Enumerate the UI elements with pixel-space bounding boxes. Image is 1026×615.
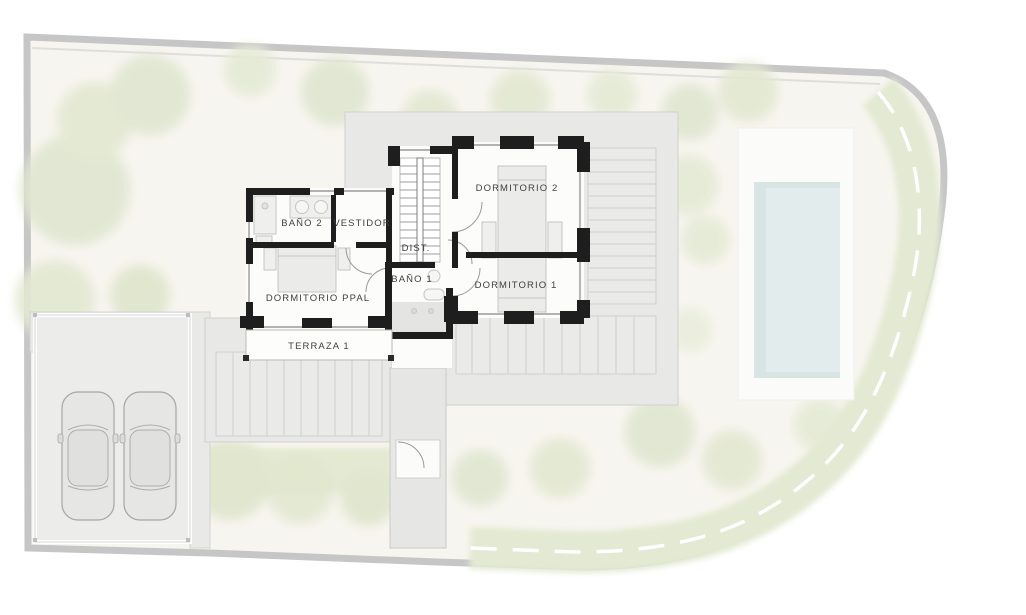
bano1-shower-zone <box>392 302 446 332</box>
room-label-bano2: BAÑO 2 <box>281 218 322 229</box>
room-label-terraza1: TERRAZA 1 <box>288 341 350 352</box>
car-1-icon <box>58 392 118 520</box>
walkway <box>390 368 446 548</box>
shower-icon <box>254 196 276 234</box>
room-label-dormitorio-ppal: DORMITORIO PPAL <box>266 293 370 304</box>
toilet1-icon <box>424 289 444 300</box>
room-label-dormitorio2: DORMITORIO 2 <box>476 183 559 194</box>
room-label-dist: DIST. <box>402 243 431 254</box>
roof-slats-horizontal <box>588 148 656 304</box>
site-plan: BAÑO 2 VESTIDOR DORMITORIO 2 DIST. BAÑO … <box>0 0 1026 615</box>
room-label-dormitorio1: DORMITORIO 1 <box>475 280 558 291</box>
pool <box>738 128 854 400</box>
room-label-vestidor: VESTIDOR <box>333 218 390 229</box>
car-2-icon <box>120 392 180 520</box>
roof-slats-vertical-right <box>456 316 656 374</box>
floor-plan-drawing: BAÑO 2 VESTIDOR DORMITORIO 2 DIST. BAÑO … <box>0 0 1026 615</box>
roof-slats-vertical-left <box>216 352 382 436</box>
room-label-bano1: BAÑO 1 <box>391 274 432 285</box>
bottom-hedge <box>202 448 392 494</box>
garage <box>33 313 190 542</box>
